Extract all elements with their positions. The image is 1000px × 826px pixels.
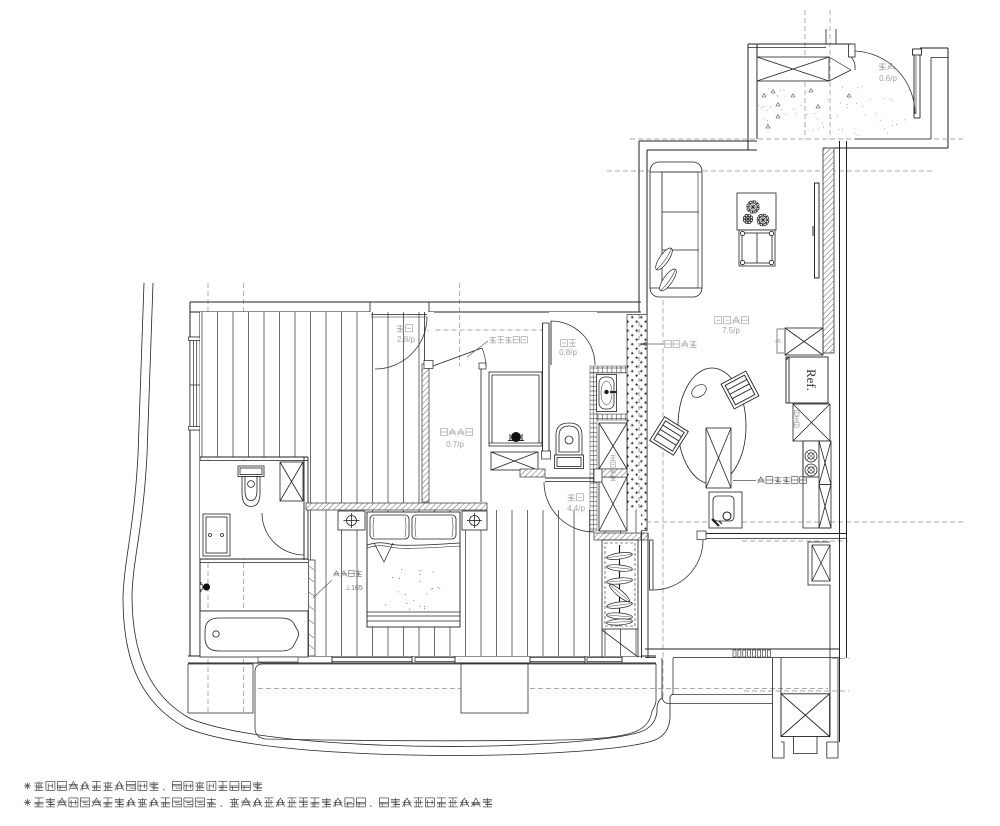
svg-text:4.4/p: 4.4/p bbox=[567, 504, 585, 513]
svg-text:Ref.: Ref. bbox=[804, 369, 819, 391]
svg-text:0.7/p: 0.7/p bbox=[446, 440, 464, 449]
svg-text:0.6/p: 0.6/p bbox=[879, 74, 897, 83]
svg-text:7.5/p: 7.5/p bbox=[722, 326, 740, 335]
svg-text:45: 45 bbox=[775, 339, 781, 345]
svg-text:0.8/p: 0.8/p bbox=[559, 348, 577, 357]
svg-text:2.8/p: 2.8/p bbox=[397, 335, 415, 344]
svg-text:⊥165: ⊥165 bbox=[345, 585, 363, 592]
